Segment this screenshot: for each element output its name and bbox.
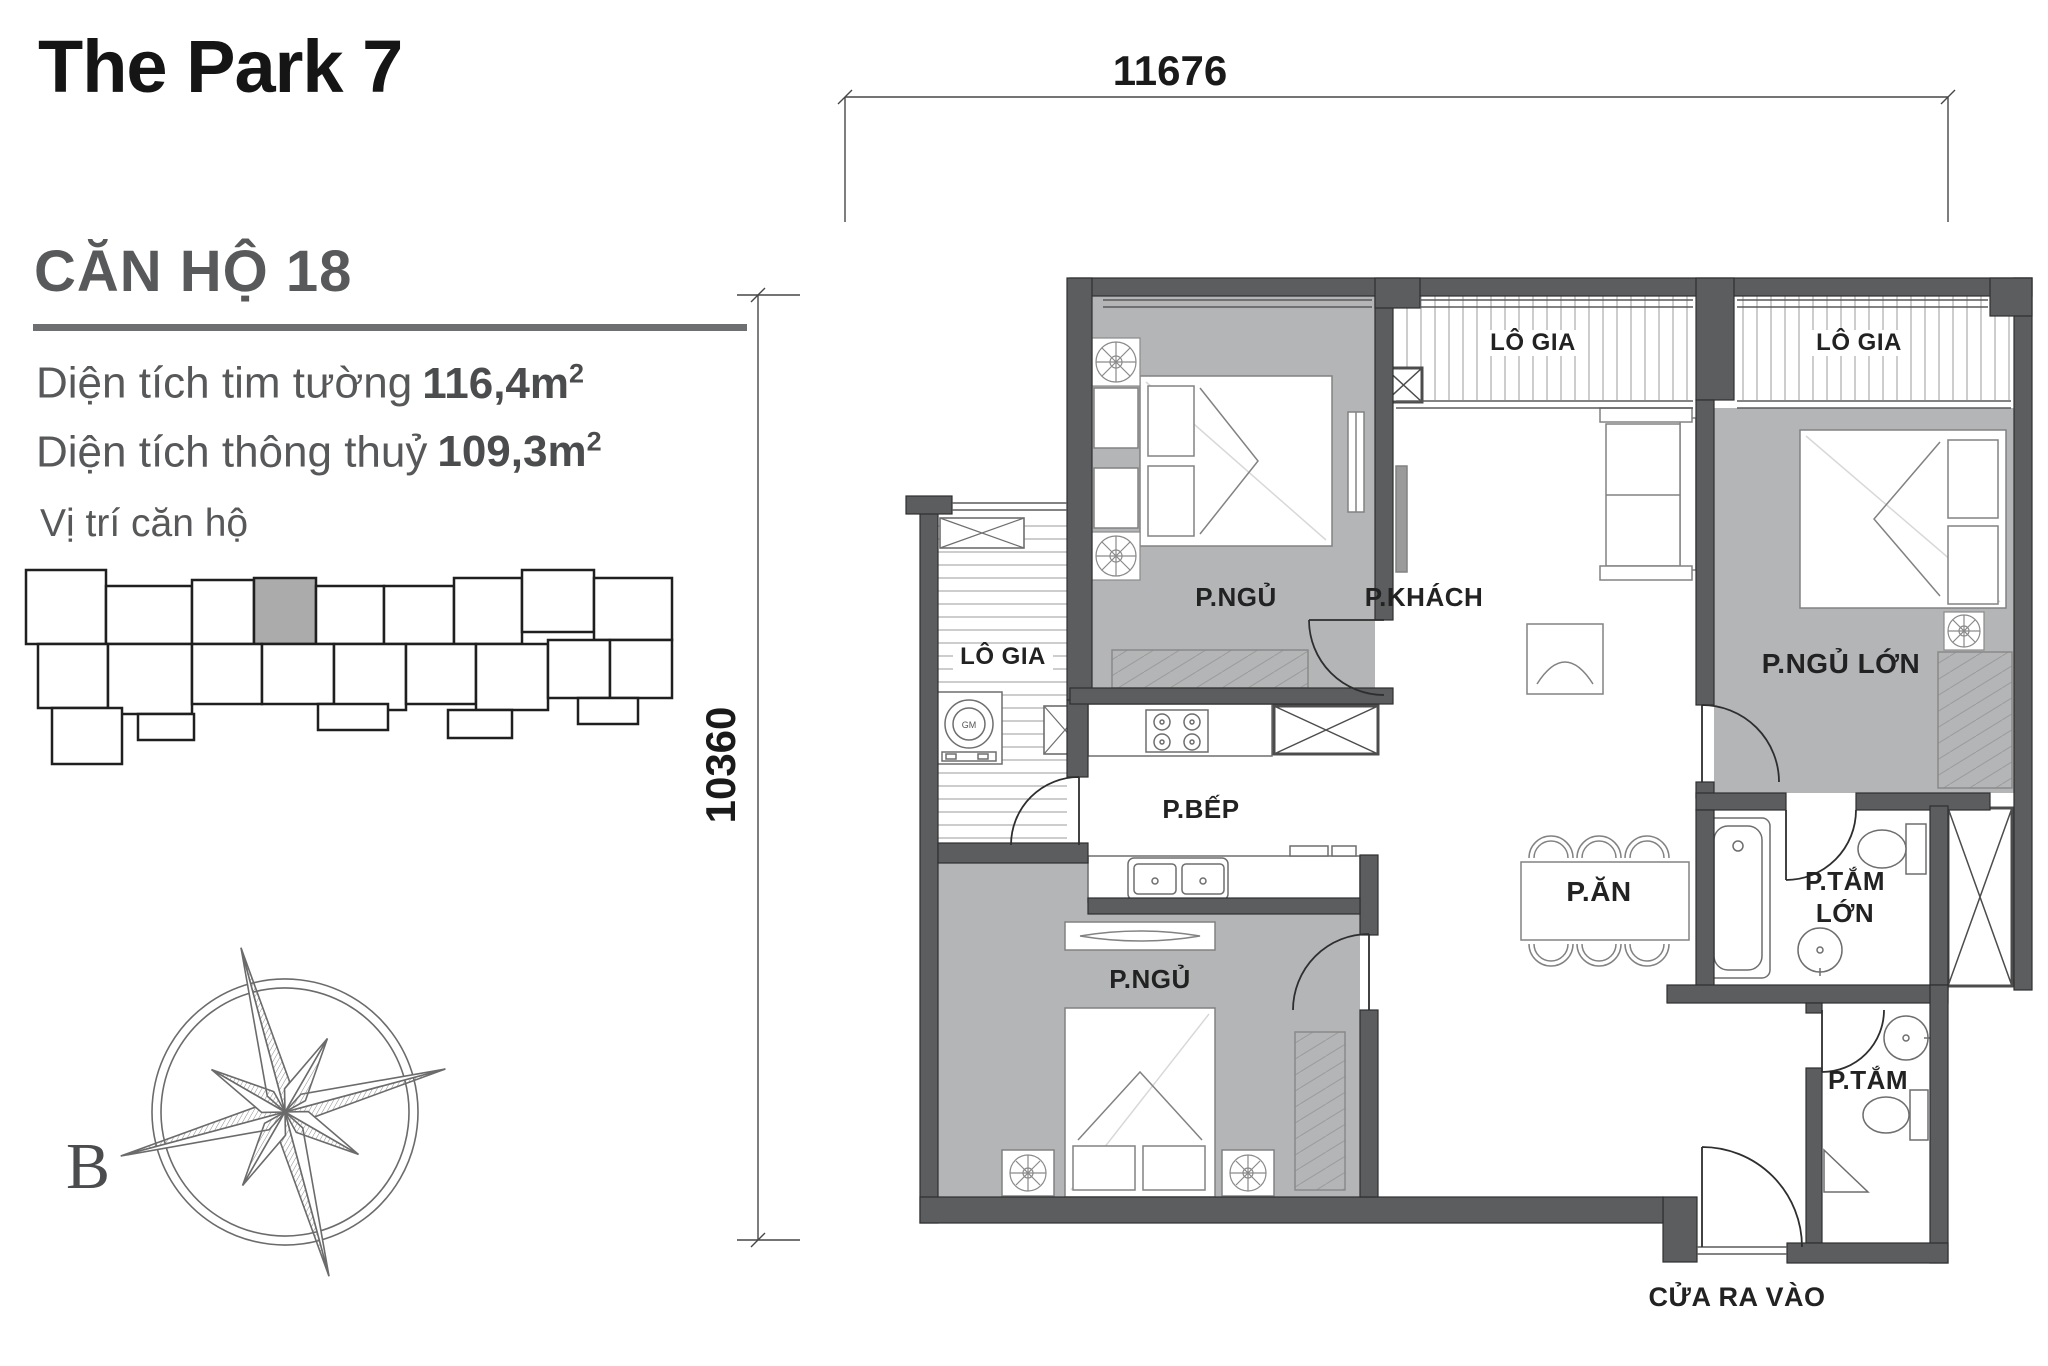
label-kitchen: P.BẾP <box>1162 794 1239 824</box>
area-line-2: Diện tích thông thuỷ109,3m2 <box>36 413 602 482</box>
highlighted-unit <box>254 578 316 644</box>
flower-icon-master <box>1944 612 1984 650</box>
label-master-bath-2: LỚN <box>1816 898 1874 928</box>
north-label: B <box>66 1130 110 1203</box>
label-bedroom-top: P.NGỦ <box>1195 581 1277 612</box>
label-living: P.KHÁCH <box>1365 582 1484 612</box>
location-label: Vị trí căn hộ <box>40 502 248 546</box>
label-loggia-left: LÔ GIA <box>960 642 1046 670</box>
floorplan-sheet: The Park 7 CĂN HỘ 18 Diện tích tim tường… <box>0 0 2048 1366</box>
label-loggia-top-right: LÔ GIA <box>1816 328 1902 356</box>
label-bedroom-bottom: P.NGỦ <box>1109 963 1191 994</box>
label-bath: P.TẮM <box>1828 1065 1908 1095</box>
label-loggia-top-left: LÔ GIA <box>1490 328 1576 356</box>
dim-width-label: 11676 <box>1113 47 1227 94</box>
dim-height-label: 10360 <box>697 707 744 824</box>
living-furniture <box>1396 408 1696 694</box>
label-entrance: CỬA RA VÀO <box>1649 1280 1826 1312</box>
floor-plan: GM <box>690 0 2048 1366</box>
master-bed <box>1800 430 2006 608</box>
project-title: The Park 7 <box>38 24 402 109</box>
title-divider <box>33 324 747 331</box>
wardrobe-bedroom1 <box>1112 650 1308 688</box>
area-info: Diện tích tim tường116,4m2 Diện tích thô… <box>36 344 602 481</box>
bath2-fixtures <box>1824 1016 1930 1192</box>
apartment-title: CĂN HỘ 18 <box>34 238 352 305</box>
building-location-map <box>18 556 680 792</box>
area-line-1: Diện tích tim tường116,4m2 <box>36 344 602 413</box>
label-master-bedroom: P.NGỦ LỚN <box>1762 647 1921 679</box>
washer-label: GM <box>962 720 977 730</box>
wardrobe-bedroom2 <box>1295 1032 1345 1190</box>
compass-icon: B <box>30 900 490 1360</box>
label-master-bath-1: P.TẮM <box>1805 866 1885 896</box>
label-dining: P.ĂN <box>1566 876 1631 907</box>
wardrobe-master <box>1938 652 2012 788</box>
